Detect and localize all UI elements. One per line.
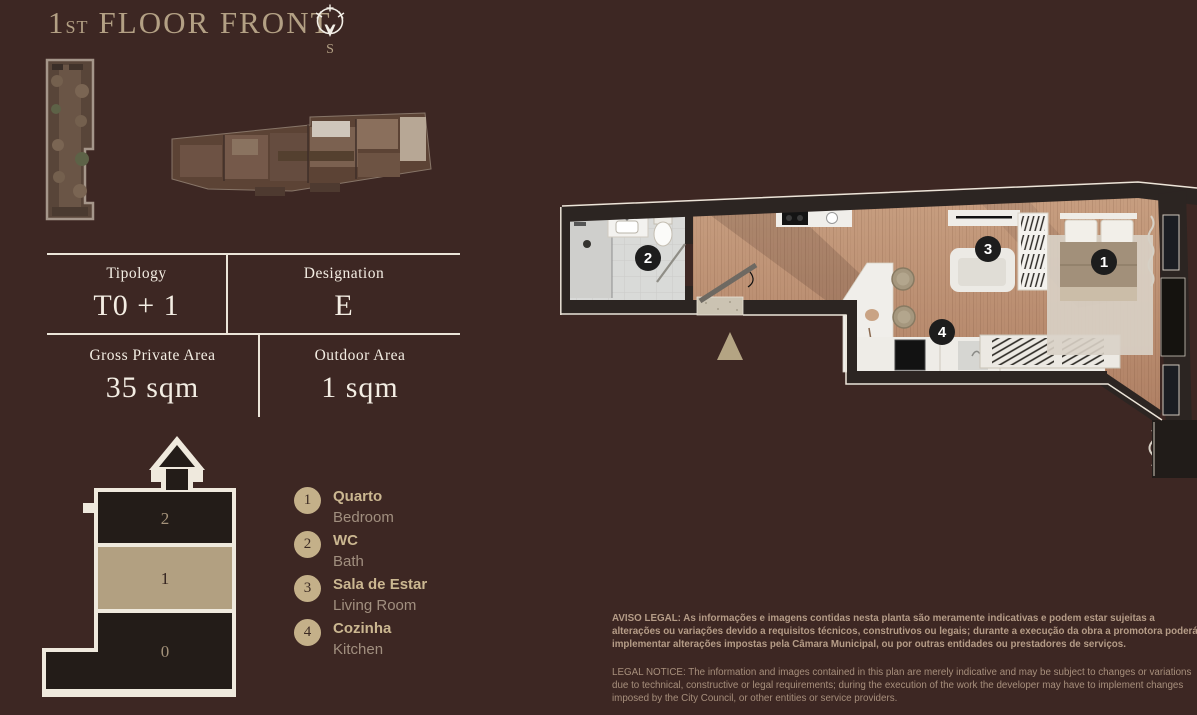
gross-private-area-value: 35 sqm: [47, 371, 258, 405]
oven: [895, 340, 925, 370]
full-floor-plan-thumbnail: [160, 103, 437, 216]
svg-text:1: 1: [1100, 254, 1108, 271]
svg-text:4: 4: [938, 324, 947, 341]
pillow: [1101, 220, 1133, 244]
designation-value: E: [228, 289, 460, 323]
outdoor-area-label: Outdoor Area: [260, 347, 460, 365]
cell-tipology: Tipology T0 + 1: [47, 265, 226, 323]
legend-pt-quarto: Quarto: [333, 486, 394, 507]
plan-marker-1: 1: [1091, 249, 1117, 275]
title-ordinal: ST: [66, 17, 89, 38]
page-title: 1 ST FLOOR FRONT: [48, 5, 332, 41]
legend-pt-sala: Sala de Estar: [333, 574, 427, 595]
legal-notice-pt: AVISO LEGAL: As informações e imagens co…: [612, 612, 1197, 651]
toilet: [654, 222, 672, 246]
cooktop: [782, 211, 808, 225]
legend-item-kitchen: 4 Cozinha Kitchen: [294, 618, 427, 661]
kitchen-sink-round: [827, 213, 838, 224]
title-text: FLOOR FRONT: [99, 5, 332, 41]
legend-item-bedroom: 1 Quarto Bedroom: [294, 486, 427, 529]
legend-item-bath: 2 WC Bath: [294, 530, 427, 573]
floor-0-label: 0: [161, 642, 170, 661]
plan-marker-2: 2: [635, 245, 661, 271]
pillow: [1065, 220, 1097, 244]
cell-gross-private-area: Gross Private Area 35 sqm: [47, 347, 258, 405]
entrance-arrow: [717, 332, 743, 360]
cell-designation: Designation E: [228, 265, 460, 323]
floor-2-label: 2: [161, 509, 170, 528]
tipology-label: Tipology: [47, 265, 226, 283]
shower: [570, 220, 612, 298]
plan-marker-4: 4: [929, 319, 955, 345]
floor-0-extension: [46, 652, 98, 689]
designation-label: Designation: [228, 265, 460, 283]
table-line-middle: [47, 333, 460, 335]
gross-private-area-label: Gross Private Area: [47, 347, 258, 365]
table-line-top: [47, 253, 460, 255]
legend-item-living-room: 3 Sala de Estar Living Room: [294, 574, 427, 617]
building-section-diagram: 2 1 0: [42, 436, 242, 709]
outdoor-area-value: 1 sqm: [260, 371, 460, 405]
terrace-plan-thumbnail: [44, 57, 100, 230]
bathroom: [568, 216, 685, 300]
shower-drain: [583, 240, 591, 248]
floor-1-label: 1: [161, 569, 170, 588]
legend-pt-wc: WC: [333, 530, 364, 551]
legend-en-bedroom: Bedroom: [333, 507, 394, 529]
legal-notice-en: LEGAL NOTICE: The information and images…: [612, 666, 1197, 705]
tipology-value: T0 + 1: [47, 289, 226, 323]
legend-en-living-room: Living Room: [333, 595, 427, 617]
svg-text:2: 2: [644, 250, 652, 267]
legend-number-2: 2: [294, 531, 321, 558]
main-floor-plan: 1 2 3 4: [560, 180, 1197, 485]
cell-outdoor-area: Outdoor Area 1 sqm: [260, 347, 460, 405]
legend-en-bath: Bath: [333, 551, 364, 573]
compass: S: [312, 3, 348, 58]
title-floor-number: 1: [48, 5, 65, 41]
room-legend: 1 Quarto Bedroom 2 WC Bath 3 Sala de Est…: [294, 486, 427, 662]
svg-text:3: 3: [984, 241, 992, 258]
tv: [956, 216, 1012, 219]
legend-number-4: 4: [294, 619, 321, 646]
legal-notices: AVISO LEGAL: As informações e imagens co…: [612, 612, 1197, 705]
plan-marker-3: 3: [975, 236, 1001, 262]
compass-south-icon: [312, 3, 348, 39]
legend-en-kitchen: Kitchen: [333, 639, 391, 661]
legend-pt-cozinha: Cozinha: [333, 618, 391, 639]
compass-south-label: S: [312, 42, 348, 58]
bookshelf: [1018, 213, 1048, 290]
legend-number-3: 3: [294, 575, 321, 602]
legend-number-1: 1: [294, 487, 321, 514]
spec-table: Tipology T0 + 1 Designation E Gross Priv…: [47, 253, 460, 417]
